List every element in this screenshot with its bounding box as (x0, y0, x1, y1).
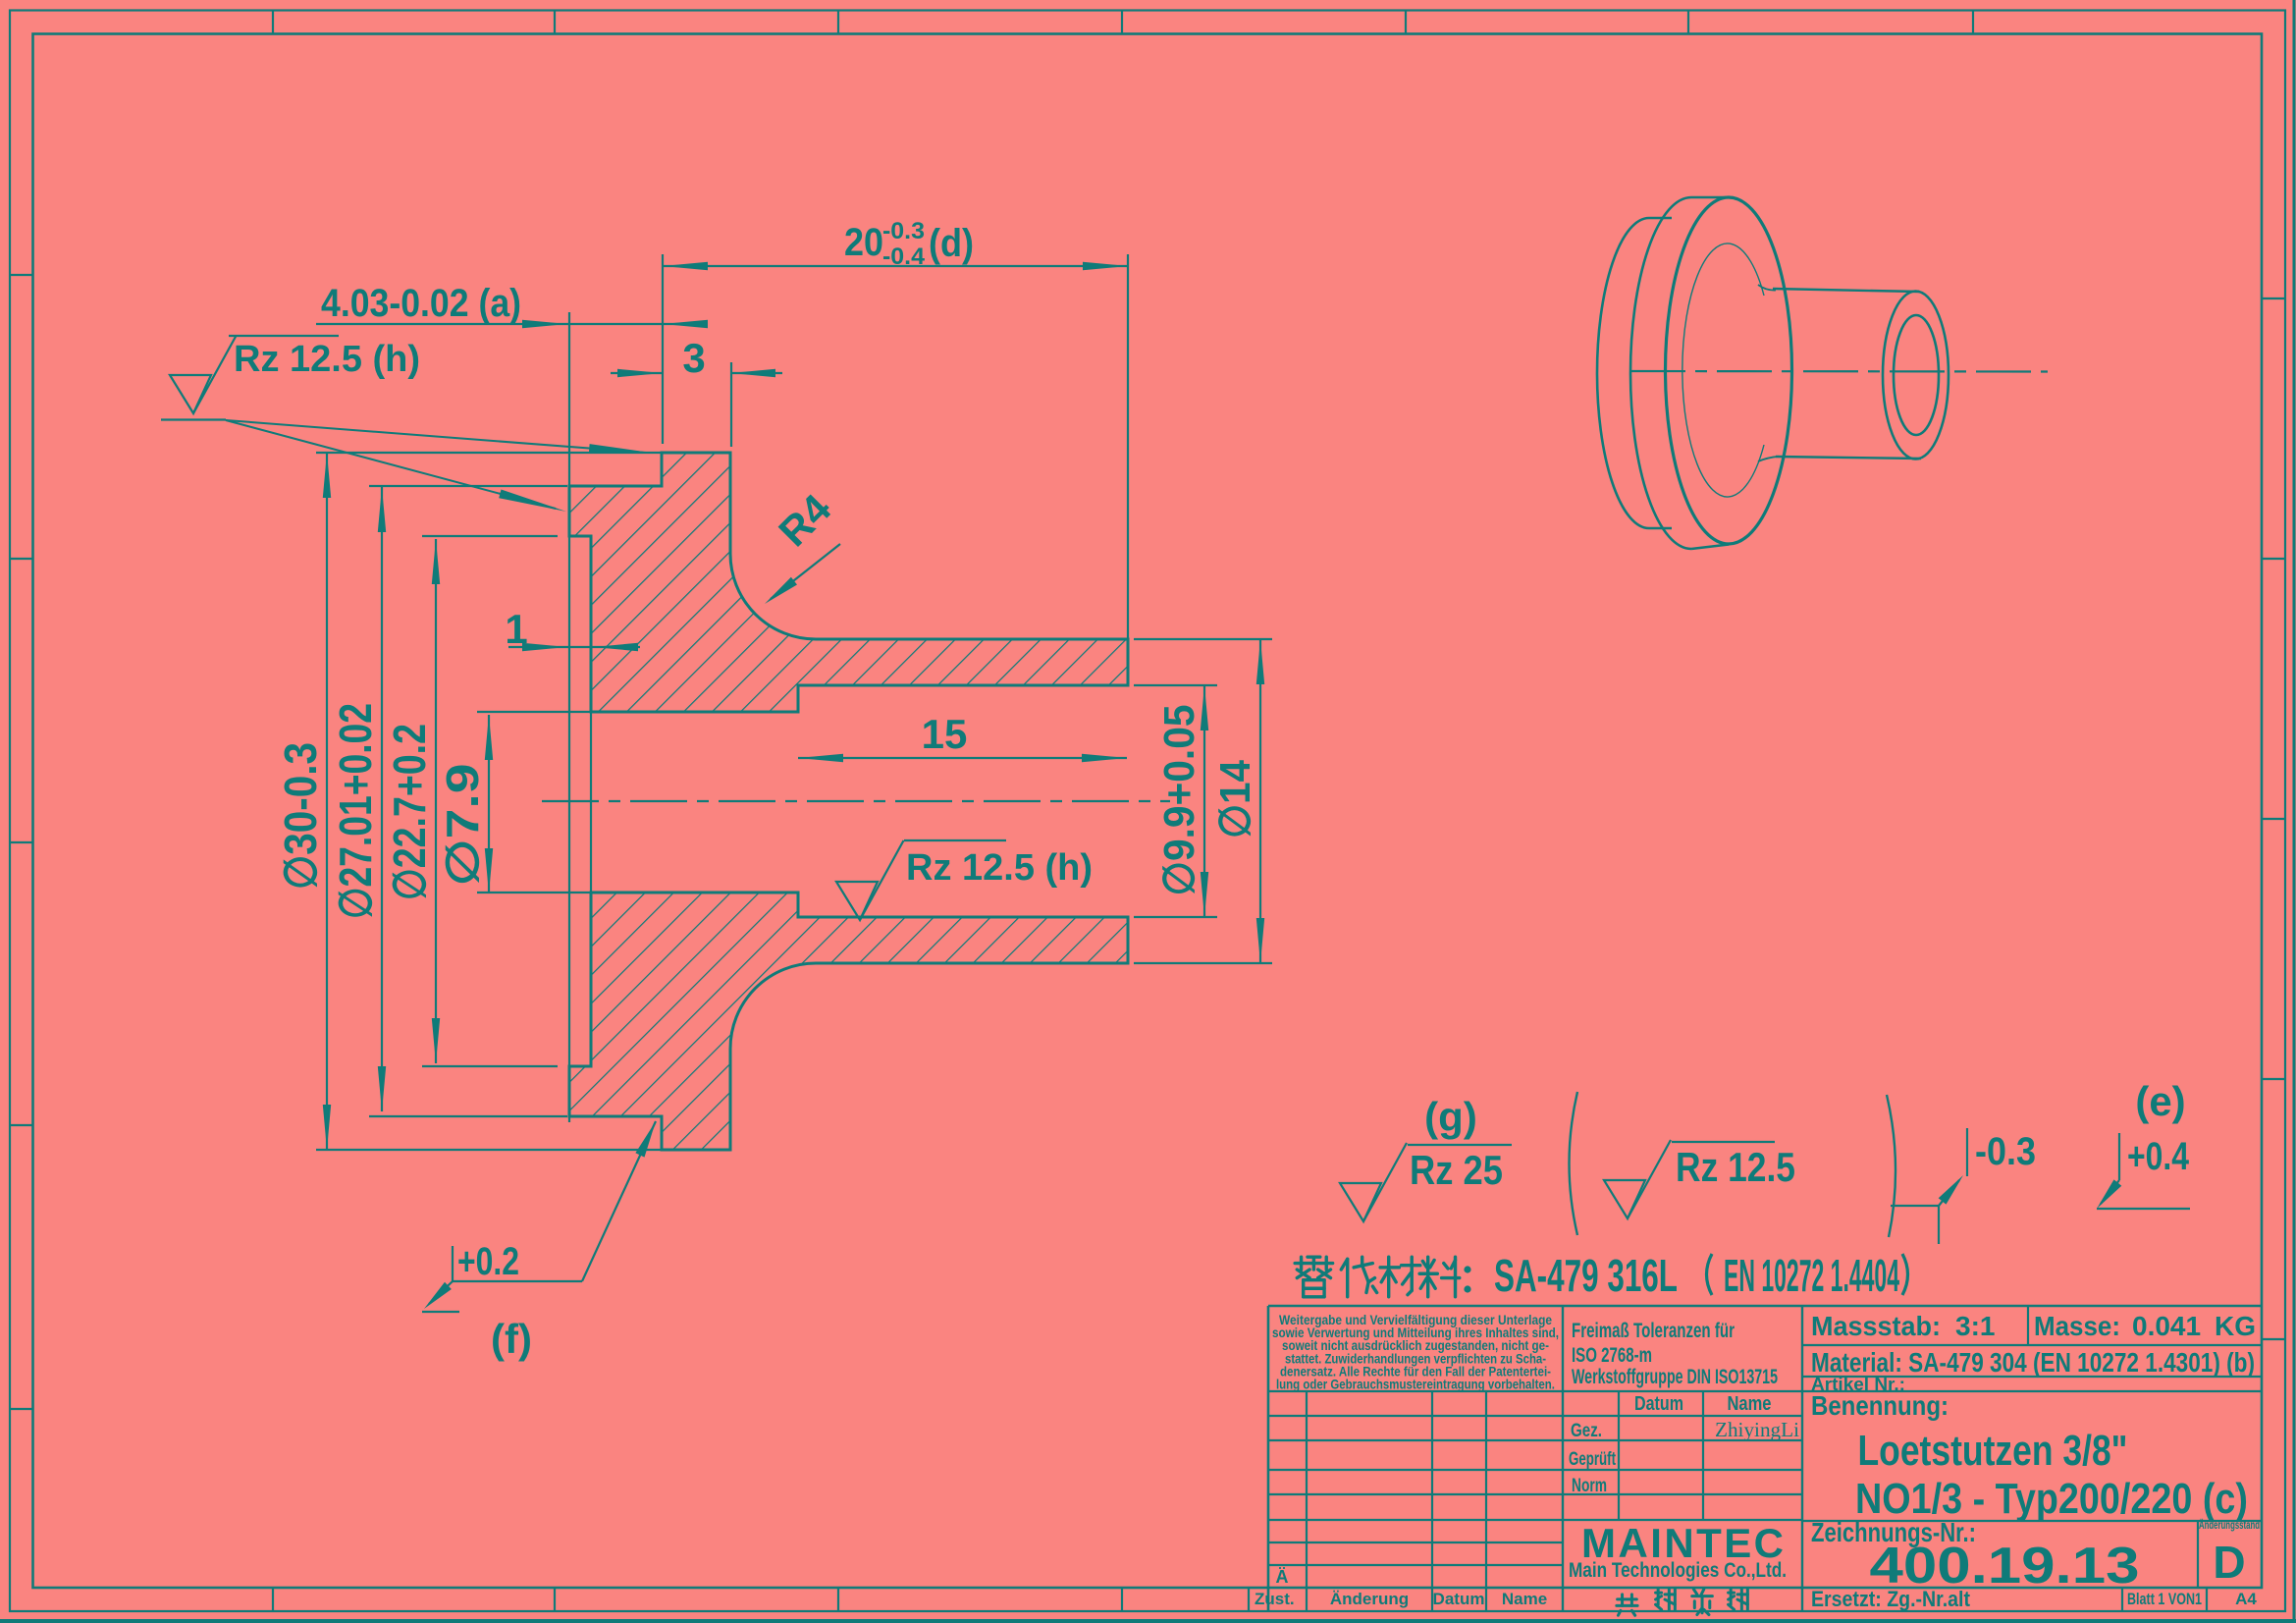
svg-text:D: D (2213, 1537, 2245, 1588)
svg-text:SA-479 316L: SA-479 316L (1494, 1250, 1678, 1301)
svg-text:A4: A4 (2235, 1590, 2257, 1608)
svg-text:-0.3: -0.3 (1975, 1130, 2036, 1173)
svg-text:Ä: Ä (1276, 1567, 1289, 1587)
svg-text:Massstab:: Massstab: (1811, 1311, 1941, 1341)
svg-text:Masse:: Masse: (2034, 1311, 2120, 1341)
svg-text:∅9.9+0.05: ∅9.9+0.05 (1155, 705, 1203, 896)
svg-text:Geprüft: Geprüft (1569, 1449, 1616, 1470)
svg-text:Datum: Datum (1433, 1590, 1485, 1608)
svg-text:(f): (f) (491, 1316, 532, 1362)
svg-text:Ersetzt: Zg.-Nr.alt: Ersetzt: Zg.-Nr.alt (1811, 1587, 1971, 1611)
svg-text:(e): (e) (2135, 1078, 2185, 1124)
svg-text:Rz 12.5 (h): Rz 12.5 (h) (906, 847, 1093, 889)
svg-text:∅27.01+0.02: ∅27.01+0.02 (330, 703, 381, 919)
svg-text:Name: Name (1728, 1393, 1772, 1415)
svg-text:Rz 25: Rz 25 (1410, 1147, 1503, 1193)
svg-text:Rz 12.5: Rz 12.5 (1676, 1144, 1795, 1190)
svg-text:0.041: 0.041 (2132, 1311, 2201, 1341)
svg-text:-0.4: -0.4 (882, 243, 926, 270)
svg-text:3:1: 3:1 (1955, 1311, 1995, 1341)
svg-text:Blatt 1 VON1: Blatt 1 VON1 (2127, 1590, 2202, 1608)
svg-text:Norm: Norm (1572, 1476, 1607, 1496)
svg-text:+0.4: +0.4 (2127, 1135, 2190, 1178)
svg-text:Loetstutzen 3/8": Loetstutzen 3/8" (1858, 1427, 2128, 1475)
svg-text:Name: Name (1502, 1590, 1547, 1608)
svg-text:Änderungsstand: Änderungsstand (2199, 1519, 2260, 1532)
svg-text:+0.2: +0.2 (457, 1240, 519, 1283)
svg-text:1: 1 (505, 606, 527, 652)
svg-text:Datum: Datum (1634, 1393, 1683, 1415)
svg-text:Werkstoffgruppe DIN ISO13715: Werkstoffgruppe DIN ISO13715 (1572, 1366, 1778, 1388)
svg-text:Änderung: Änderung (1330, 1590, 1409, 1608)
svg-text:KG: KG (2215, 1311, 2256, 1341)
svg-text:ISO 2768-m: ISO 2768-m (1572, 1344, 1652, 1367)
svg-text:4.03-0.02 (a): 4.03-0.02 (a) (321, 282, 521, 325)
svg-text:NO1/3 - Typ200/220 (c): NO1/3 - Typ200/220 (c) (1855, 1475, 2248, 1523)
svg-text:-0.3: -0.3 (882, 218, 925, 244)
svg-text:(d): (d) (929, 222, 974, 265)
svg-text:Freimaß Toleranzen für: Freimaß Toleranzen für (1572, 1320, 1735, 1342)
svg-text:lung oder Gebrauchsmustereintr: lung oder Gebrauchsmustereintragung vorb… (1276, 1378, 1555, 1392)
svg-text:Rz 12.5 (h): Rz 12.5 (h) (234, 339, 420, 380)
svg-text:15: 15 (922, 711, 968, 757)
svg-text:3: 3 (682, 335, 705, 381)
svg-text:ZhiyingLi: ZhiyingLi (1715, 1418, 1799, 1441)
svg-text:Zust.: Zust. (1255, 1590, 1295, 1608)
svg-text:EN 10272 1.4404: EN 10272 1.4404 (1724, 1250, 1899, 1301)
svg-text:(g): (g) (1424, 1094, 1477, 1140)
svg-text:∅22.7+0.2: ∅22.7+0.2 (384, 724, 435, 900)
svg-text:Main Technologies Co.,Ltd.: Main Technologies Co.,Ltd. (1569, 1559, 1787, 1582)
svg-text:20: 20 (844, 221, 883, 264)
svg-text:Gez.: Gez. (1571, 1421, 1602, 1441)
svg-text:∅7.9: ∅7.9 (437, 764, 488, 887)
svg-text:∅14: ∅14 (1211, 760, 1259, 839)
svg-text:Benennung:: Benennung: (1811, 1390, 1949, 1421)
svg-text:∅30-0.3: ∅30-0.3 (275, 742, 326, 890)
